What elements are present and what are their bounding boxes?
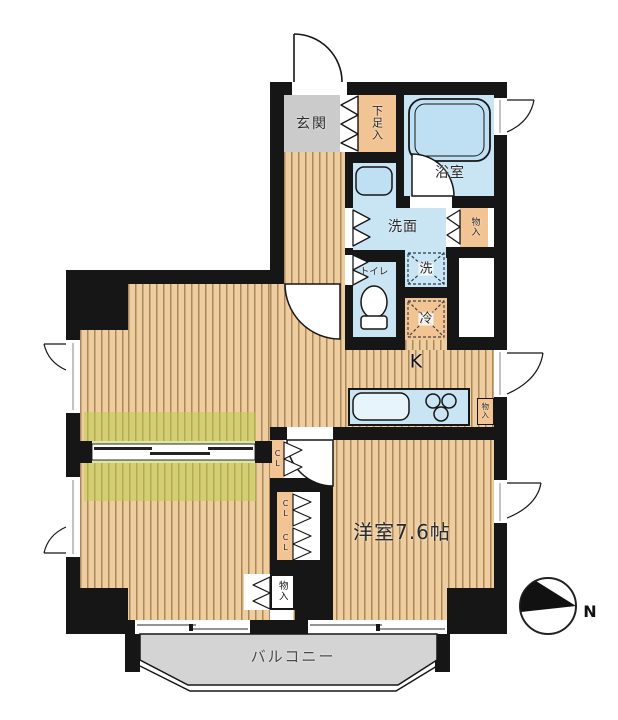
- sliding-partition-track: [92, 444, 255, 460]
- fixtures-overlay: [0, 0, 618, 720]
- label-laundry: 洗: [418, 263, 433, 276]
- label-compass-north: N: [583, 604, 596, 620]
- label-closet-mid-upper: CL: [281, 499, 289, 519]
- label-closet-top: CL: [273, 449, 281, 469]
- label-kitchen-storage: 物入: [481, 403, 489, 420]
- bottom-storage-bifold-icon: [253, 577, 270, 609]
- washroom-bifold-door-icon: [353, 210, 370, 246]
- bathtub-icon: [409, 99, 490, 161]
- label-toilet: トイレ: [360, 267, 389, 277]
- casement-swings: [44, 100, 543, 553]
- label-genkan: 玄関: [296, 117, 328, 131]
- balcony-sliding-windows: [137, 625, 445, 629]
- label-balcony: バルコニー: [251, 650, 336, 665]
- label-kitchen: K: [410, 353, 422, 372]
- label-western-room: 洋室7.6帖: [353, 522, 451, 542]
- label-bathroom: 浴室: [435, 166, 465, 180]
- kitchen-sink-icon: [353, 393, 409, 420]
- toilet-icon: [361, 286, 387, 329]
- accordion-door-icon: [341, 96, 358, 151]
- stove-burners-icon: [426, 394, 456, 421]
- entrance-door-swing: [294, 34, 342, 82]
- label-closet-mid-lower: CL: [281, 533, 289, 553]
- closet-mid-bifold-icon: [293, 494, 311, 560]
- label-refrigerator: 冷: [418, 313, 433, 326]
- window1-sash-tick: [189, 624, 193, 631]
- washbasin-icon: [356, 167, 392, 195]
- label-shoe-cabinet: 下足入: [372, 105, 383, 141]
- label-bottom-storage: 物入: [277, 581, 287, 602]
- label-washroom: 洗面: [388, 220, 418, 234]
- label-washroom-storage: 物入: [470, 217, 479, 237]
- compass-icon: [520, 578, 576, 634]
- storage-bifold-door-icon: [447, 210, 460, 244]
- floor-plan: 玄関 下足入 浴室 洗面 物入 トイレ 洗 冷 K 物入 CL CL CL 物入…: [0, 0, 618, 720]
- window2-sash-tick: [376, 624, 380, 631]
- main-room-door-swing: [285, 284, 340, 339]
